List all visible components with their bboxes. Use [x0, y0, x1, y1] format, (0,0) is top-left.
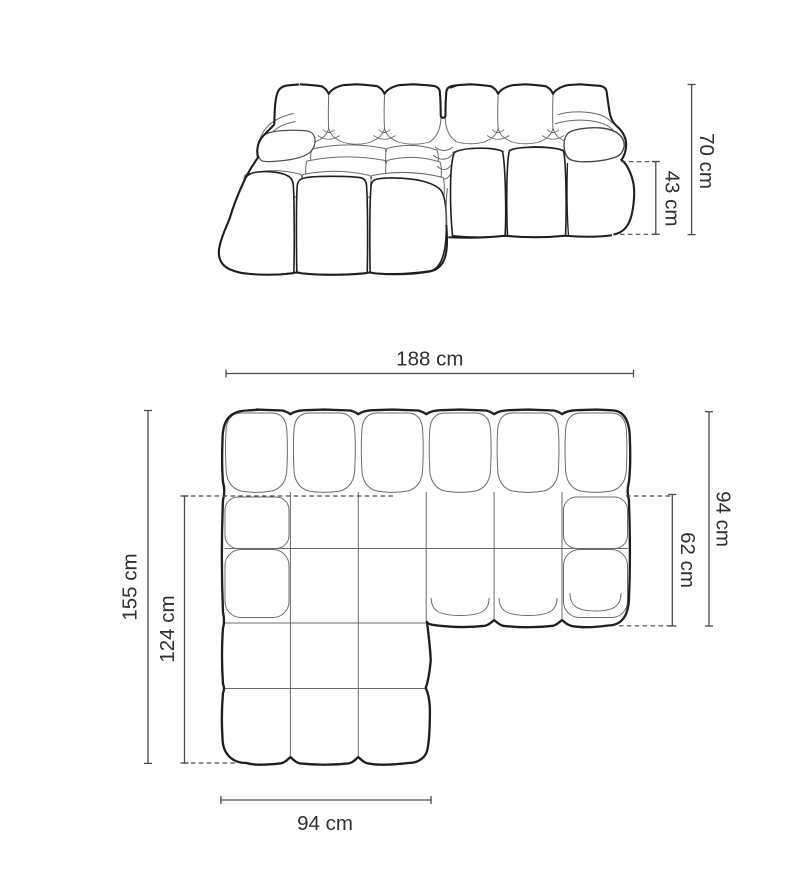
- svg-text:62 cm: 62 cm: [676, 532, 699, 588]
- svg-text:155 cm: 155 cm: [118, 553, 141, 620]
- svg-text:124 cm: 124 cm: [156, 595, 179, 662]
- svg-text:94 cm: 94 cm: [297, 812, 353, 835]
- svg-text:94 cm: 94 cm: [712, 491, 735, 547]
- svg-text:43 cm: 43 cm: [661, 171, 684, 227]
- svg-text:70 cm: 70 cm: [695, 133, 718, 189]
- svg-text:188 cm: 188 cm: [396, 348, 463, 371]
